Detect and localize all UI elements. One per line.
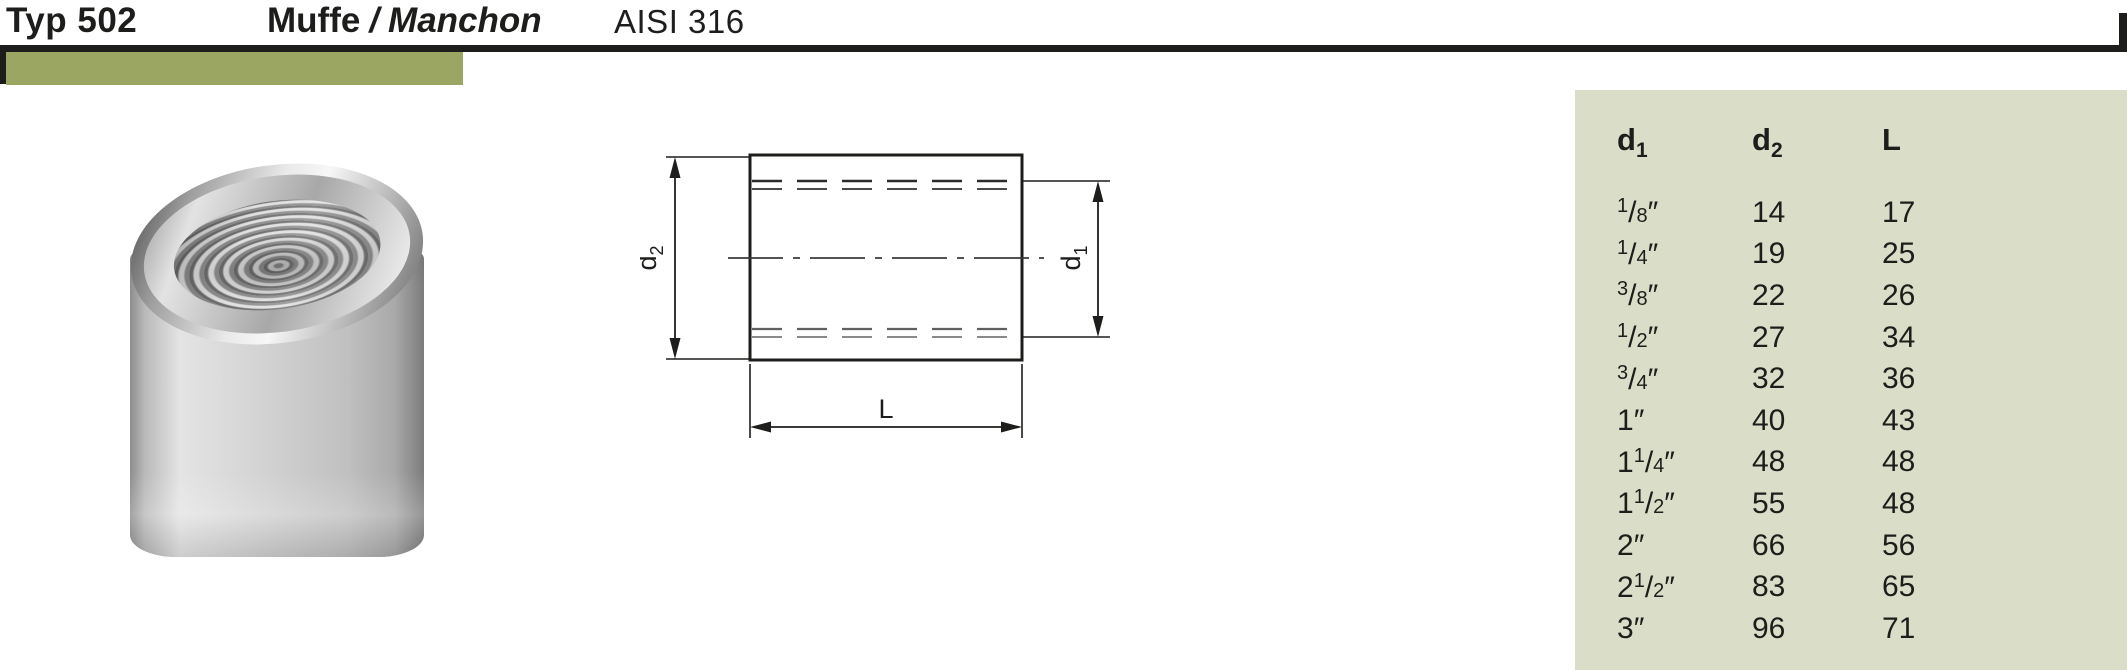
- table-row: 1/2″2734: [1617, 317, 2127, 359]
- accent-bar: [6, 52, 463, 85]
- l-arrow-right: [1001, 422, 1022, 433]
- drawing-label-d2: d2: [640, 245, 667, 270]
- table-header-row: d1d2L: [1575, 122, 2127, 164]
- l-arrow-left: [750, 422, 771, 433]
- cell-d1: 3/4″: [1617, 362, 1752, 397]
- catalog-page: { "header": { "type_label": "Typ 502", "…: [0, 0, 2127, 670]
- table-header-cell: d2: [1752, 122, 1882, 164]
- page-title-type: Typ 502: [6, 1, 137, 41]
- cell-d1: 1/8″: [1617, 195, 1752, 230]
- cell-d1: 11/2″: [1617, 486, 1752, 521]
- cell-d2: 22: [1752, 279, 1882, 313]
- page-title-name: Muffe/Manchon: [267, 1, 542, 41]
- cell-d1: 11/4″: [1617, 445, 1752, 480]
- d2-arrow-up: [670, 157, 681, 178]
- cell-l: 48: [1882, 487, 2127, 521]
- cell-l: 48: [1882, 445, 2127, 479]
- d1-arrow-up: [1093, 181, 1104, 202]
- cell-d1: 2″: [1617, 529, 1752, 563]
- cell-d1: 21/2″: [1617, 570, 1752, 605]
- drawing-label-length: L: [878, 394, 893, 424]
- cell-l: 71: [1882, 612, 2127, 646]
- technical-drawing: d2 d1 L: [640, 140, 1120, 450]
- photo-internal-threads: [167, 187, 388, 323]
- title-separator: /: [369, 1, 379, 40]
- table-row: 1/8″1417: [1617, 192, 2127, 234]
- table-header-cell: d1: [1617, 122, 1752, 164]
- table-row: 3/4″3236: [1617, 358, 2127, 400]
- product-photo: [130, 165, 424, 557]
- cell-d1: 3/8″: [1617, 278, 1752, 313]
- table-header-cell: L: [1882, 122, 2127, 164]
- cell-d1: 1″: [1617, 404, 1752, 438]
- table-row: 1/4″1925: [1617, 234, 2127, 276]
- cell-d2: 19: [1752, 237, 1882, 271]
- header-rule-right-tick: [2119, 13, 2127, 52]
- cell-d2: 55: [1752, 487, 1882, 521]
- cell-d1: 1/2″: [1617, 320, 1752, 355]
- d2-arrow-down: [670, 338, 681, 359]
- cell-l: 36: [1882, 362, 2127, 396]
- table-row: 2″6656: [1617, 525, 2127, 567]
- cell-l: 25: [1882, 237, 2127, 271]
- table-body: 1/8″14171/4″19253/8″22261/2″27343/4″3236…: [1575, 192, 2127, 650]
- drawing-label-d1: d1: [1056, 245, 1091, 270]
- cell-d2: 66: [1752, 529, 1882, 563]
- d1-arrow-down: [1093, 316, 1104, 337]
- cell-d2: 48: [1752, 445, 1882, 479]
- cell-d2: 83: [1752, 570, 1882, 604]
- table-row: 1″4043: [1617, 400, 2127, 442]
- cell-d2: 96: [1752, 612, 1882, 646]
- table-row: 3/8″2226: [1617, 275, 2127, 317]
- product-name-french: Manchon: [388, 1, 542, 40]
- dimension-table: d1d2L 1/8″14171/4″19253/8″22261/2″27343/…: [1575, 90, 2127, 670]
- cell-l: 17: [1882, 196, 2127, 230]
- cell-l: 34: [1882, 321, 2127, 355]
- table-row: 11/4″4848: [1617, 442, 2127, 484]
- cell-d2: 14: [1752, 196, 1882, 230]
- cell-l: 65: [1882, 570, 2127, 604]
- table-row: 3″9671: [1617, 608, 2127, 650]
- material-spec: AISI 316: [614, 3, 745, 41]
- cell-l: 56: [1882, 529, 2127, 563]
- cell-l: 26: [1882, 279, 2127, 313]
- table-row: 11/2″5548: [1617, 483, 2127, 525]
- cell-d2: 32: [1752, 362, 1882, 396]
- cell-d2: 40: [1752, 404, 1882, 438]
- cell-l: 43: [1882, 404, 2127, 438]
- table-row: 21/2″8365: [1617, 566, 2127, 608]
- cell-d2: 27: [1752, 321, 1882, 355]
- product-name-german: Muffe: [267, 1, 360, 40]
- header-rule: [0, 45, 2127, 52]
- cell-d1: 1/4″: [1617, 237, 1752, 272]
- cell-d1: 3″: [1617, 612, 1752, 646]
